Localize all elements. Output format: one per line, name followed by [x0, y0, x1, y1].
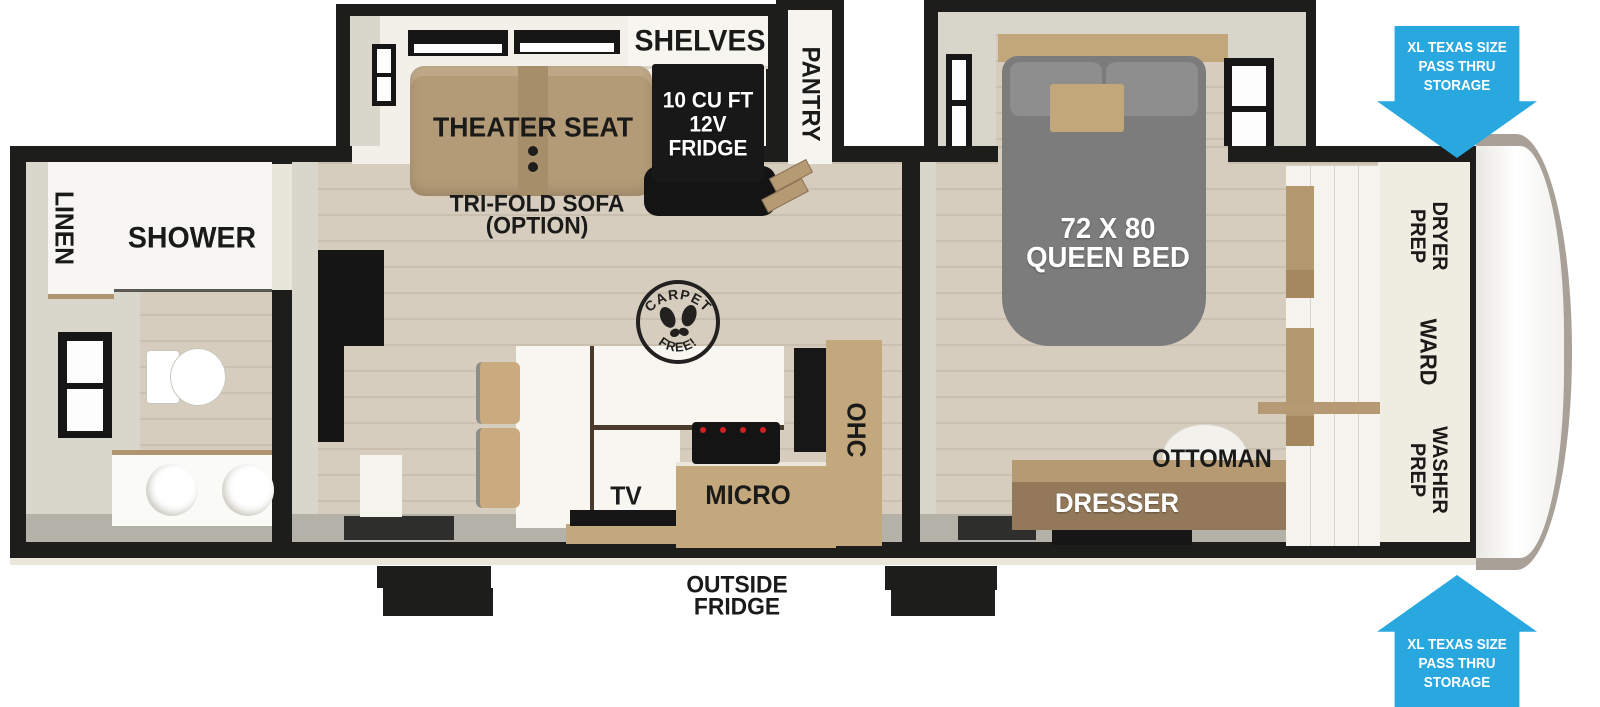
bathroom-doorway: [272, 164, 292, 290]
living-left-wallface: [292, 162, 318, 514]
linen-label: LINEN: [52, 191, 75, 265]
tv-label: TV: [610, 484, 642, 507]
ottoman-label: OTTOMAN: [1152, 448, 1272, 471]
shoeprint-icon: [657, 304, 683, 339]
bar-stool: [476, 428, 520, 508]
bedroom-tv-icon: [1052, 530, 1192, 545]
entry-threshold-living: [344, 516, 454, 540]
linen-cabinet-edge: [48, 294, 114, 299]
dryer-prep-label: DRYER PREP: [1406, 201, 1450, 270]
queen-bed-label: 72 X 80 QUEEN BED: [1026, 215, 1190, 273]
tv-icon: [570, 510, 676, 526]
entry-step: [383, 588, 493, 616]
carpet-free-stamp: CARPET FREE!: [634, 278, 722, 366]
cooktop-icon: [692, 422, 780, 464]
fireplace-base: [318, 346, 344, 442]
rv-floorplan: CARPET FREE! LINEN SHOWER: [0, 0, 1600, 707]
wardrobe-shelf-board: [1258, 402, 1380, 414]
bed-wood-tray: [1050, 84, 1124, 132]
skylight-left-icon: [408, 30, 508, 56]
skylight-right-icon: [514, 30, 620, 54]
kitchen-island: [516, 346, 594, 528]
front-cap: [1476, 146, 1564, 558]
cupholder-icon: [528, 162, 538, 172]
pantry-label: PANTRY: [799, 47, 822, 142]
bedroom-window-left: [946, 54, 972, 152]
sink-left-icon: [146, 464, 198, 516]
micro-label: MICRO: [705, 483, 791, 507]
svg-text:FREE!: FREE!: [656, 334, 700, 355]
wardrobe-shelf-open: [1286, 328, 1314, 446]
fridge-label: 10 CU FT 12V FRIDGE: [663, 89, 754, 162]
shower-label: SHOWER: [128, 225, 256, 252]
pass-thru-storage-arrow-bottom: XL TEXAS SIZE PASS THRU STORAGE: [1377, 575, 1537, 707]
sink-right-icon: [222, 464, 274, 516]
toilet-icon: [170, 348, 226, 406]
entry-step: [885, 566, 997, 590]
theater-seat-label: THEATER SEAT: [433, 114, 633, 139]
fireplace: [318, 250, 384, 346]
entry-step: [891, 590, 995, 616]
tri-fold-sofa-label: TRI-FOLD SOFA (OPTION): [450, 193, 625, 236]
bedroom-left-wallface: [920, 162, 936, 514]
dresser-label: DRESSER: [1055, 491, 1179, 515]
oven-icon: [794, 348, 828, 452]
small-cabinet: [360, 455, 402, 517]
ward-label: WARD: [1418, 319, 1439, 386]
stamp-bottom-text: FREE!: [656, 334, 700, 355]
shelves-label: SHELVES: [635, 28, 766, 55]
pantry-opening: [788, 146, 832, 164]
living-slide-window: [372, 44, 396, 106]
shoeprint-icon: [676, 303, 699, 338]
ohc-label: OHC: [844, 403, 867, 458]
cupholder-icon: [528, 146, 538, 156]
shower-glass: [114, 289, 272, 292]
bathroom-window: [58, 332, 112, 438]
washer-prep-label: WASHER PREP: [1406, 426, 1450, 514]
bar-stool: [476, 362, 520, 424]
outside-fridge-label: OUTSIDE FRIDGE: [686, 574, 787, 617]
wardrobe-shelf-open: [1286, 186, 1314, 298]
body-skin-edge: [10, 558, 1500, 565]
entry-step: [377, 566, 491, 588]
